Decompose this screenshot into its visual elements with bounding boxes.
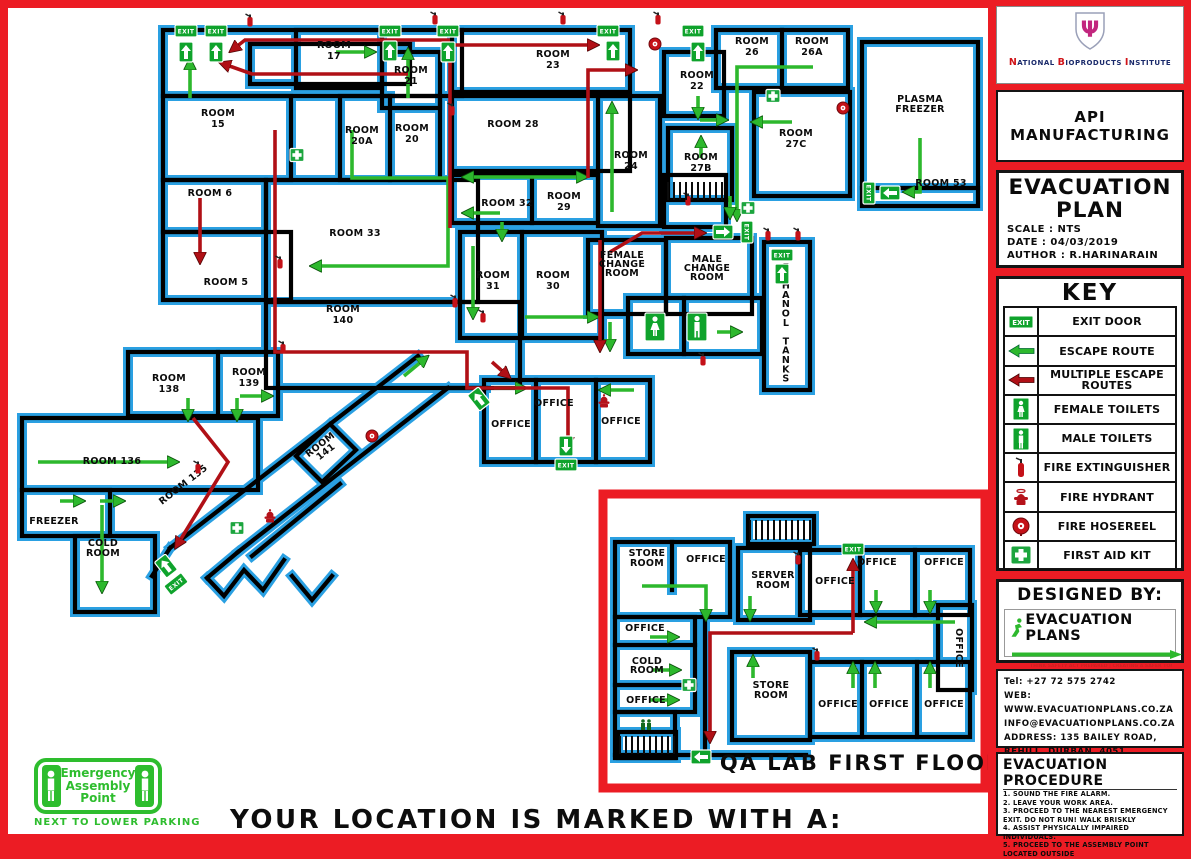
- key-row: FIRE HYDRANT: [1005, 483, 1175, 512]
- person-icon: [135, 765, 154, 807]
- exit-door-sign: EXIT: [555, 459, 577, 471]
- designed-by-panel: DESIGNED BY: EVACUATION PLANS THINK SAFE…: [996, 579, 1184, 663]
- exit-runner-sign: [179, 42, 193, 62]
- fire-hydrant-icon: [265, 509, 276, 522]
- exit-door-sign: EXIT: [205, 25, 227, 37]
- exit-runner-sign: [713, 225, 733, 239]
- first-aid-kit-icon: [682, 679, 696, 692]
- svg-text:EXIT: EXIT: [440, 28, 457, 35]
- first-aid-kit-icon: [741, 202, 755, 215]
- plan-scale: SCALE : NTS: [1007, 224, 1173, 235]
- exit-door-icon: EXIT: [1005, 308, 1039, 335]
- procedure-step: 1. SOUND THE FIRE ALARM.: [1003, 790, 1177, 799]
- contact-web: WEB: WWW.EVACUATIONPLANS.CO.ZA: [1004, 690, 1176, 718]
- inset-title: QA LAB FIRST FLOOR: [720, 751, 988, 775]
- exit-runner-sign: [691, 750, 711, 764]
- procedure-step: 5. PROCEED TO THE ASSEMBLY POINT LOCATED…: [1003, 841, 1177, 858]
- fire-hosereel-icon: [837, 102, 849, 114]
- female-toilets-icon: [645, 313, 665, 341]
- contact-address-1: ADDRESS: 135 BAILEY ROAD,: [1004, 732, 1176, 746]
- key-row: MULTIPLE ESCAPE ROUTES: [1005, 367, 1175, 396]
- room-label: OFFICE: [869, 699, 909, 710]
- fire-hosereel-icon: [1005, 513, 1039, 540]
- room-label: OFFICE: [818, 699, 858, 710]
- male-toilets-icon: [1005, 425, 1039, 452]
- room-label: OFFICE: [953, 628, 964, 668]
- nbi-logo-panel: Ψ NATIONAL BIOPRODUCTS INSTITUTE: [996, 6, 1184, 84]
- room-label: COLDROOM: [86, 538, 120, 559]
- key-row: EXIT EXIT DOOR: [1005, 308, 1175, 337]
- procedure-step: 4. ASSIST PHYSICALLY IMPAIRED INDIVIDUAL…: [1003, 824, 1177, 841]
- exit-door-sign: EXIT: [175, 25, 197, 37]
- exit-door-sign: EXIT: [379, 25, 401, 37]
- exit-runner-sign: [691, 42, 705, 62]
- plan-title-panel: EVACUATION PLAN SCALE : NTS DATE : 04/03…: [996, 170, 1184, 268]
- room-label: ROOM 32: [481, 198, 533, 209]
- exit-runner-sign: [209, 42, 223, 62]
- person-icon: [42, 765, 61, 807]
- exit-runner-sign: [606, 41, 620, 61]
- room-label: ROOM 53: [915, 178, 967, 189]
- exit-runner-sign: [441, 42, 455, 62]
- procedure-heading: EVACUATION PROCEDURE: [1003, 757, 1177, 790]
- room-label: OFFICE: [534, 398, 574, 409]
- evacuation-procedure-panel: EVACUATION PROCEDURE 1. SOUND THE FIRE A…: [996, 752, 1184, 836]
- plan-title: EVACUATION PLAN: [1007, 177, 1173, 222]
- fire-hosereel-icon: [366, 430, 378, 442]
- exit-door-sign: EXIT: [771, 249, 793, 261]
- department-title: API MANUFACTURING: [996, 90, 1184, 162]
- room-label: OFFICE: [857, 557, 897, 568]
- designed-by-heading: DESIGNED BY:: [1004, 585, 1176, 605]
- svg-text:EXIT: EXIT: [685, 28, 702, 35]
- plan-author: AUTHOR : R.HARINARAIN: [1007, 250, 1173, 261]
- location-marker-text: YOUR LOCATION IS MARKED WITH A:: [230, 805, 843, 835]
- running-man-icon: [1008, 616, 1025, 640]
- assembly-note: NEXT TO LOWER PARKING: [34, 817, 184, 828]
- emergency-assembly-point-sign: Emergency Assembly Point NEXT TO LOWER P…: [34, 758, 184, 828]
- room-label: OFFICE: [491, 419, 531, 430]
- brand-arrow: [1012, 650, 1182, 659]
- key-title: KEY: [1003, 281, 1177, 306]
- floor-plan-area: ROOM15ROOM 6ROOM 5ROOM17ROOM21ROOM20AROO…: [8, 8, 988, 834]
- room-label: ROOM 33: [329, 228, 381, 239]
- first-aid-kit-icon: [290, 149, 304, 162]
- contact-tel: Tel: +27 72 575 2742: [1004, 676, 1176, 690]
- room-label: PLASMAFREEZER: [895, 94, 945, 115]
- key-row: FIRST AID KIT: [1005, 542, 1175, 569]
- key-panel: KEY EXIT EXIT DOOR ESCAPE ROUTE MULTIPLE…: [996, 276, 1184, 571]
- room-label: ROOM 28: [487, 119, 539, 130]
- svg-text:EXIT: EXIT: [1012, 319, 1030, 327]
- exit-runner-sign: [880, 186, 900, 200]
- brand-name: EVACUATION PLANS: [1025, 612, 1172, 644]
- fire-extinguisher-icon: [559, 12, 566, 25]
- exit-door-sign: EXIT: [741, 221, 753, 243]
- room-label: ROOM 6: [188, 188, 233, 199]
- svg-text:EXIT: EXIT: [178, 28, 195, 35]
- room-label: ROOM 136: [83, 456, 142, 467]
- first-aid-kit-icon: [1005, 542, 1039, 569]
- assembly-line: Point: [80, 791, 115, 805]
- svg-text:EXIT: EXIT: [743, 224, 750, 241]
- svg-text:EXIT: EXIT: [558, 462, 575, 469]
- fire-hosereel-icon: [649, 38, 661, 50]
- nbi-caption: NATIONAL BIOPRODUCTS INSTITUTE: [997, 57, 1183, 68]
- multiple-escape-routes-icon: [1005, 367, 1039, 394]
- fire-hydrant-icon: [1005, 483, 1039, 510]
- key-row: FIRE HOSEREEL: [1005, 513, 1175, 542]
- fire-extinguisher-icon: [1005, 454, 1039, 481]
- room-label: ROOM 5: [204, 277, 249, 288]
- male-toilets-icon: [687, 313, 707, 341]
- contact-panel: Tel: +27 72 575 2742 WEB: WWW.EVACUATION…: [996, 669, 1184, 748]
- svg-text:EXIT: EXIT: [845, 546, 862, 553]
- room-label: OFFICE: [601, 416, 641, 427]
- procedure-step: 3. PROCEED TO THE NEAREST EMERGENCY EXIT…: [1003, 807, 1177, 824]
- svg-text:EXIT: EXIT: [208, 28, 225, 35]
- key-row: FEMALE TOILETS: [1005, 396, 1175, 425]
- evacuation-plans-logo: EVACUATION PLANS THINK SAFETY ACT PREPAR…: [1004, 609, 1176, 657]
- room-label: STOREROOM: [629, 548, 666, 569]
- fire-extinguisher-icon: [431, 12, 438, 25]
- room-label: FREEZER: [29, 516, 79, 527]
- room-label: FEMALECHANGEROOM: [599, 250, 645, 279]
- svg-text:EXIT: EXIT: [774, 252, 791, 259]
- plan-date: DATE : 04/03/2019: [1007, 237, 1173, 248]
- room-label: OFFICE: [815, 576, 855, 587]
- exit-runner-sign: [559, 436, 573, 456]
- contact-email: INFO@EVACUATIONPLANS.CO.ZA: [1004, 718, 1176, 732]
- svg-text:EXIT: EXIT: [600, 28, 617, 35]
- procedure-step: 2. LEAVE YOUR WORK AREA.: [1003, 799, 1177, 808]
- room-label: OFFICE: [626, 695, 666, 706]
- room-label: OFFICE: [924, 557, 964, 568]
- key-row: MALE TOILETS: [1005, 425, 1175, 454]
- first-aid-kit-icon: [766, 90, 780, 103]
- room-label: STOREROOM: [753, 680, 790, 701]
- evacuation-floor-plan: ROOM15ROOM 6ROOM 5ROOM17ROOM21ROOM20AROO…: [8, 8, 988, 834]
- exit-door-sign: EXIT: [682, 25, 704, 37]
- key-row: ESCAPE ROUTE: [1005, 337, 1175, 366]
- fire-extinguisher-icon: [246, 14, 253, 27]
- exit-runner-sign: [383, 41, 397, 61]
- exit-door-sign: EXIT: [437, 25, 459, 37]
- room-label: OFFICE: [625, 623, 665, 634]
- female-toilets-icon: [1005, 396, 1039, 423]
- escape-route-icon: [1005, 337, 1039, 364]
- key-row: FIRE EXTINGUISHER: [1005, 454, 1175, 483]
- room-label: COLDROOM: [630, 656, 664, 676]
- svg-text:EXIT: EXIT: [382, 28, 399, 35]
- nbi-shield-logo: Ψ: [1073, 11, 1107, 51]
- svg-text:Ψ: Ψ: [1081, 18, 1100, 43]
- exit-door-sign: EXIT: [863, 182, 875, 204]
- svg-text:EXIT: EXIT: [865, 185, 872, 202]
- room-label: OFFICE: [924, 699, 964, 710]
- first-aid-kit-icon: [230, 522, 244, 535]
- room-label: SERVERROOM: [751, 570, 795, 591]
- exit-door-sign: EXIT: [842, 543, 864, 555]
- fire-extinguisher-icon: [654, 12, 661, 25]
- exit-runner-sign: [775, 264, 789, 284]
- room-label: OFFICE: [686, 554, 726, 565]
- exit-door-sign: EXIT: [597, 25, 619, 37]
